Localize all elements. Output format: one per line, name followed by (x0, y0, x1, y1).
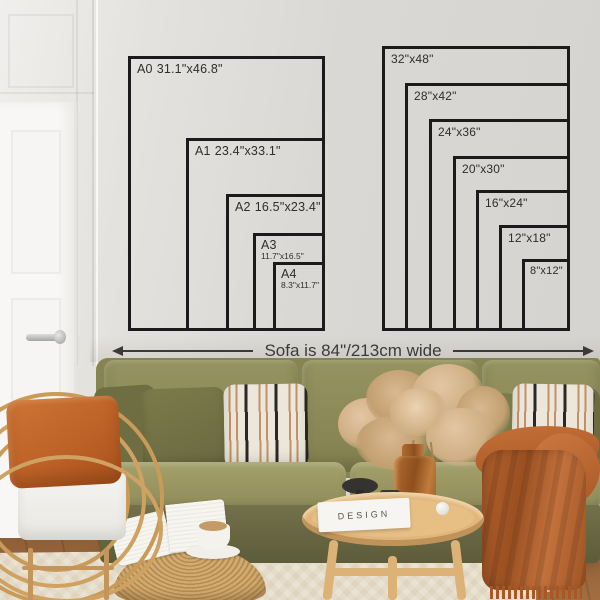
door-handle-base (54, 330, 66, 344)
size-label-28x42: 28"x42" (414, 89, 457, 103)
size-label-12x18: 12"x18" (508, 231, 551, 245)
rattan-armchair (0, 388, 165, 600)
inch-size-chart: 32"x48" 28"x42" 24"x36" 20"x30" 16"x24" … (382, 46, 570, 331)
size-name-a1: A1 (195, 144, 211, 158)
a-series-size-chart: A031.1"x46.8" A123.4"x33.1" A216.5"x23.4… (128, 56, 325, 331)
arrowhead-right-icon (583, 346, 594, 356)
size-name-a2: A2 (235, 200, 251, 214)
wall-molding-horizontal (0, 92, 94, 94)
size-dims-a3: 11.7"x16.5" (261, 252, 304, 261)
size-label-32x48: 32"x48" (391, 52, 434, 66)
throw-texture (482, 450, 586, 590)
throw-fringe (490, 586, 582, 599)
design-book-title: DESIGN (338, 509, 391, 522)
chair-strut (22, 566, 114, 570)
wall-molding-vertical-2 (92, 0, 94, 366)
chair-leg (28, 548, 33, 600)
size-label-16x24: 16"x24" (485, 196, 528, 210)
door-panel-top (11, 130, 61, 274)
design-book: DESIGN (317, 498, 410, 533)
size-name-a0: A0 (137, 62, 153, 76)
size-label-24x36: 24"x36" (438, 125, 481, 139)
size-dims-a1: 23.4"x33.1" (215, 144, 281, 158)
wall-molding-highlight (96, 0, 98, 366)
size-dims-a4: 8.3"x11.7" (281, 281, 319, 290)
size-label-20x30: 20"x30" (462, 162, 505, 176)
size-dims-a2: 16.5"x23.4" (255, 200, 321, 214)
table-brace (330, 568, 460, 576)
size-name-a4: A4 (281, 267, 297, 281)
size-label-8x12: 8"x12" (530, 265, 563, 277)
coffee-surface (199, 521, 227, 531)
chair-leg (104, 548, 109, 600)
table-leg (388, 556, 397, 600)
decor-ball (436, 502, 449, 515)
arrow-line-left (123, 350, 253, 352)
size-dims-a0: 31.1"x46.8" (157, 62, 223, 76)
living-room-size-guide: A031.1"x46.8" A123.4"x33.1" A216.5"x23.4… (0, 0, 600, 600)
flower-cluster (390, 388, 448, 436)
arrow-line-right (453, 350, 583, 352)
arrowhead-left-icon (112, 346, 123, 356)
size-rect-a4: A48.3"x11.7" (273, 262, 325, 331)
size-rect-8x12: 8"x12" (522, 259, 570, 331)
size-name-a3: A3 (261, 238, 277, 252)
coffee-table-setting: DESIGN (296, 444, 496, 600)
wall-molding-panel (8, 14, 74, 88)
